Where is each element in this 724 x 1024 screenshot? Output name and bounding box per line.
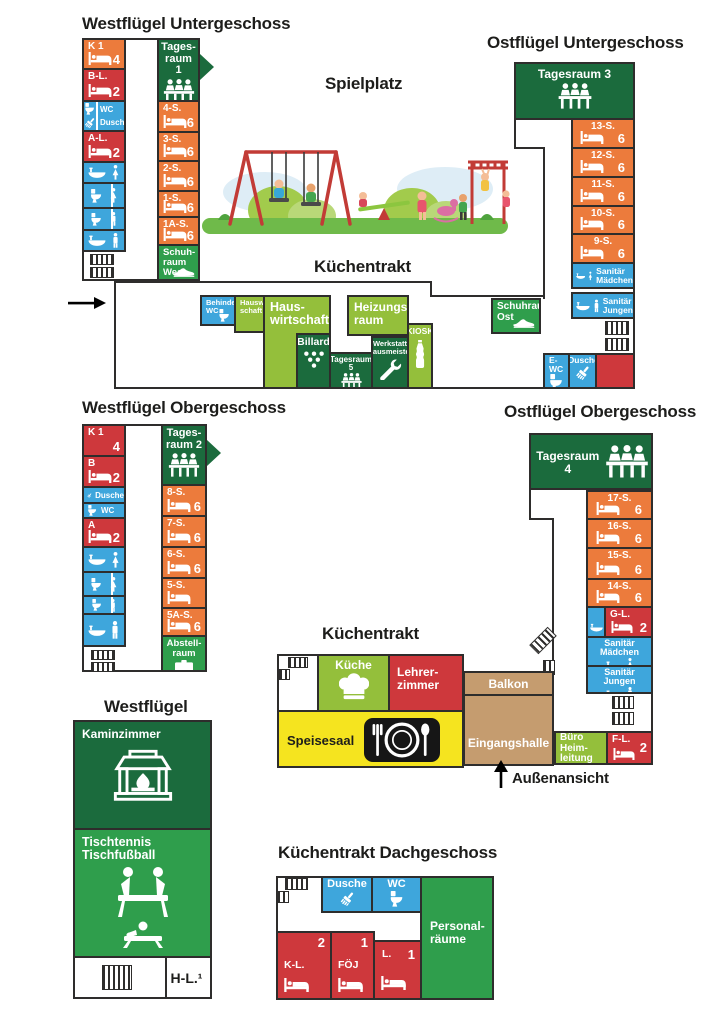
room-label: 8-S. [163,486,205,499]
room-tagesraum-5: Tagesraum 5 [329,352,373,389]
room-label: Tages- raum 1 [159,40,198,77]
room-foej: 1 FÖJ [330,931,375,1000]
bed-count: 6 [194,499,201,514]
bed-icon [167,499,191,512]
washroom-women-og [82,546,126,573]
room-wc-dach: WC [371,876,422,913]
group-table-icon [168,453,200,477]
room-label: 4-S. [159,102,198,115]
room-al: A-L. 2 [82,130,126,163]
washbasin-icon [88,235,106,246]
stairs-icon [279,669,290,680]
toilet-icon [91,599,103,611]
room-k1-og: K 1 4 [82,424,126,457]
corridor-wall [514,147,545,149]
room-label: E-WC [545,355,568,374]
room-kaminzimmer: Kaminzimmer [73,720,212,830]
bed-icon [337,978,364,992]
washroom-men-og [82,613,126,647]
bed-icon [594,590,622,603]
room-speisesaal: Speisesaal [277,710,464,768]
bed-count: 6 [618,189,625,204]
room-sanitaer-jungen-og: Sanitär Jungen [586,665,653,694]
room-label: Tagesraum 4 [531,448,605,475]
room-gl: G-L. 2 [604,606,653,638]
toilet-icon [90,213,103,226]
bed-icon [579,131,605,144]
stairs-icon [288,657,308,668]
room-label: FÖJ [338,959,358,971]
group-table-icon [557,83,593,109]
wc-women-og [82,571,126,597]
room-tagesraum-4: Tagesraum 4 [529,433,653,490]
room-1s: 1-S. 6 [157,190,200,218]
room-14s: 14-S. 6 [586,578,653,608]
man-icon [626,687,634,694]
room-eingangshalle: Eingangshalle [463,694,554,766]
washbasin-icon [576,301,590,311]
bed-count: 6 [618,160,625,175]
room-17s: 17-S. 6 [586,490,653,520]
bed-count: 6 [618,131,625,146]
bed-icon [88,145,112,158]
shower-brush-icon [575,365,591,381]
divider [111,573,113,595]
divider [111,209,113,229]
corridor-wall [114,281,432,283]
room-label: 2-S. [159,162,198,175]
room-label: Speisesaal [287,733,354,748]
bed-count: 1 [361,935,368,950]
room-label: Tagesraum 3 [536,64,613,81]
bed-icon [88,530,112,543]
bed-icon [88,470,112,483]
room-sanitaer-maedchen-og: Sanitär Mädchen [586,636,653,667]
bed-count: 4 [113,52,120,67]
bed-count: 2 [113,530,120,545]
room-label: 5-S. [163,579,205,592]
room-label: Balkon [488,677,528,691]
bed-icon [594,562,622,575]
bed-icon [163,115,187,128]
bed-count: 6 [187,200,194,215]
room-kl: 2 K-L. [276,931,332,1000]
room-tischtennis: Tischtennis Tischfußball [73,828,212,958]
washbasin-icon [605,690,622,694]
bed-count: 6 [187,144,194,159]
room-label: Abstell- raum [165,637,204,659]
room-schuhraum-west: Schuh- raum West [157,244,200,281]
room-a: A 2 [82,517,126,548]
corridor-wall [529,488,531,520]
bed-count: 1 [408,947,415,962]
chef-hat-icon [339,673,369,700]
room-wc-dusche-ug: WC Dusche [82,100,126,132]
stair-cell [75,958,167,997]
bed-icon [579,189,605,202]
bed-count: 6 [187,228,194,243]
bottle-icon [414,339,426,369]
title-spielplatz: Spielplatz [325,74,402,94]
room-abstellraum: Abstell- raum [161,635,207,672]
wrench-icon [378,358,402,380]
room-label: Büro Heim- leitung [556,731,606,765]
room-werkstatt: Werkstatt Hausmeister [371,336,409,389]
toilet-icon [87,505,98,516]
room-label: K-L. [284,959,304,971]
room-label: Kaminzimmer [75,722,210,741]
room-label: Haus- wirtschaft [265,297,329,327]
room-label: A-L. [84,132,124,145]
room-personalraeume: Personal- räume [420,876,494,1000]
toilet-icon [90,578,103,591]
room-bl: B-L. 2 [82,68,126,102]
icon-row [605,687,634,694]
icon-column [84,102,98,130]
room-12s: 12-S. 6 [571,147,635,178]
room-behinderten-wc: Behinderten WC [200,295,236,326]
wc-men-ug [82,207,126,231]
bed-count: 6 [635,562,642,577]
corridor-wall [543,147,545,299]
room-label: K 1 [84,426,124,439]
title-ost-og: Ostflügel Obergeschoss [504,402,696,422]
wc-men-og [82,595,126,615]
bed-count: 2 [640,740,647,755]
room-label: Heizungs- raum [349,297,407,326]
tagesraum1-arrow [200,54,214,80]
shoe-icon [512,317,536,328]
bed-count: 6 [187,174,194,189]
shower-brush-icon [84,117,96,129]
stairs-icon [91,650,115,660]
room-label: Werkstatt Hausmeister [371,338,409,356]
room-5s: 5-S. [161,577,207,609]
room-schuhraum-ost: Schuhraum Ost [491,298,541,334]
bed-count: 6 [618,217,625,232]
entrance-arrow-icon [68,296,106,310]
bed-count: 4 [113,439,120,454]
washroom-men-ug [82,229,126,252]
room-label: Personal- räume [422,878,492,945]
woman-icon [588,269,593,283]
title-westfluegel: Westflügel [104,697,188,717]
wc-women-ug [82,182,126,209]
room-sanitaer-maedchen-ug: Sanitär Mädchen [571,262,635,289]
divider [111,184,113,207]
bed-icon [167,619,191,632]
room-label: Sanitär Jungen [588,667,651,687]
floor-plan: Westflügel Untergeschoss Ostflügel Unter… [0,0,724,1024]
room-9s: 9-S. 6 [571,233,635,264]
room-label: 15-S. [588,549,651,562]
stairs-icon [90,267,114,278]
dining-icon [364,718,440,762]
room-label: H-L.¹ [171,970,203,986]
room-label: Dusche [325,878,369,891]
stairs-icon [612,696,634,709]
room-dusche-ug: Dusche [568,353,597,389]
room-7s: 7-S. 6 [161,515,207,548]
bed-icon [163,174,187,187]
toilet-icon [389,891,405,907]
room-tagesraum-3: Tagesraum 3 [514,62,635,120]
room-label: WC [101,506,114,515]
room-11s: 11-S. 6 [571,176,635,207]
title-ost-ug: Ostflügel Untergeschoss [487,33,684,53]
room-e-wc: E-WC [543,353,570,389]
room-hl-row: H-L.¹ [73,956,212,999]
washroom-women-ug [82,161,126,184]
shower-brush-icon [339,891,356,907]
billiard-icon [303,351,325,370]
up-arrow-icon [494,760,508,788]
bed-count: 2 [113,145,120,160]
man-icon [593,299,600,313]
room-tagesraum-1: Tages- raum 1 [157,38,200,102]
bed-count: 6 [635,590,642,605]
games-icon [106,864,180,948]
room-16s: 16-S. 6 [586,518,653,549]
room-label: Tischtennis Tischfußball [75,830,210,862]
dusche-label: Dusche [100,118,126,127]
corridor-wall [430,295,545,297]
bed-count: 6 [187,115,194,130]
bed-icon [594,531,622,544]
stairs-icon [90,254,114,265]
label-aussenansicht: Außenansicht [512,770,609,787]
group-table-icon [605,445,649,478]
bed-count: 6 [635,502,642,517]
bed-icon [167,530,191,543]
room-label: L. [382,948,391,960]
stairs-icon [612,712,634,725]
bed-icon [610,621,634,633]
room-label: G-L. [606,608,651,621]
room-fl: F-L. 2 [606,731,653,765]
room-balkon: Balkon [463,671,554,696]
washbasin-icon [576,271,585,281]
man-icon [110,621,120,639]
bed-icon [88,52,112,65]
room-15s: 15-S. 6 [586,547,653,580]
stairs-icon [91,662,115,672]
fireplace-icon [111,747,175,805]
room-label: KIOSK [407,325,433,336]
room-hl: H-L.¹ [163,958,210,997]
room-6s: 6-S. 6 [161,546,207,579]
bed-count: 6 [194,530,201,545]
room-2s: 2-S. 6 [157,160,200,192]
bed-icon [283,978,310,992]
room-13s: 13-S. 6 [571,118,635,149]
bed-count: 6 [618,246,625,261]
man-icon [111,233,120,248]
corridor-wall [529,518,554,520]
woman-icon [111,552,120,568]
bed-count: 2 [640,620,647,635]
toilet-icon [84,103,96,115]
bed-count: 6 [635,531,642,546]
washroom-gl [586,606,606,638]
room-label: Dusche [95,491,124,500]
room-heizungsraum: Heizungs- raum [347,295,409,336]
room-3s: 3-S. 6 [157,131,200,162]
room-label: Sanitär Mädchen [588,638,651,658]
title-kuechentrakt-ug: Küchentrakt [314,257,411,277]
room-10s: 10-S. 6 [571,205,635,235]
bed-icon [163,144,187,157]
room-label: 6-S. [163,548,205,561]
room-kiosk: KIOSK [407,323,433,389]
room-label: K 1 [84,40,124,53]
room-dusche-dach: Dusche [321,876,373,913]
bed-count: 6 [194,561,201,576]
bed-icon [579,160,605,173]
stairs-icon [102,965,132,990]
room-label: Tages- raum 2 [164,426,204,451]
bed-icon [167,561,191,574]
title-kuechentrakt-dach: Küchentrakt Dachgeschoss [278,843,497,863]
room-unlabeled-red [595,353,635,389]
room-lehrerzimmer: Lehrer- zimmer [388,654,464,712]
room-kueche: Küche [317,654,390,712]
stairs-icon [277,891,289,903]
bed-icon [594,502,622,515]
room-label: WC [385,878,407,891]
room-hauswirtschaft-klein: Hauswirt- schaft [234,295,265,333]
group-table-icon [340,373,363,389]
room-5as: 5A-S. 6 [161,607,207,637]
wc-label: WC [100,105,126,114]
room-sanitaer-jungen-ug: Sanitär Jungen [571,292,635,319]
room-8s: 8-S. 6 [161,484,207,517]
title-west-ug: Westflügel Untergeschoss [82,14,290,34]
group-table-icon [163,79,195,102]
room-l: L. 1 [373,940,422,1000]
bed-icon [380,976,407,990]
room-tagesraum-2: Tages- raum 2 [161,424,207,486]
toilet-icon [90,189,103,203]
room-label: Sanitär Jungen [603,297,633,315]
stairs-icon [605,321,629,335]
title-kuechentrakt: Küchentrakt [322,624,419,644]
washbasin-icon [88,625,106,636]
title-west-og: Westflügel Obergeschoss [82,398,286,418]
room-label: Eingangshalle [468,736,549,750]
woman-icon [111,165,120,180]
label-column: WC Dusche [98,102,126,130]
bed-icon [163,200,187,213]
shower-brush-icon [87,490,92,501]
bed-count: 6 [194,619,201,634]
room-label: Dusche [568,355,597,365]
toilet-icon [549,374,564,389]
washbasin-icon [88,167,106,178]
room-4s: 4-S. 6 [157,100,200,133]
corridor-wall [114,281,116,389]
washbasin-icon [590,623,603,632]
washbasin-icon [88,554,106,565]
room-b: B 2 [82,455,126,488]
room-label: B-L. [84,70,124,83]
stairs-icon [605,338,629,351]
room-label: Küche [333,656,374,672]
bed-icon [579,246,605,259]
bed-count: 2 [113,470,120,485]
bed-icon [579,217,605,230]
bed-icon [163,228,187,241]
toilet-icon [218,309,231,322]
bed-count: 2 [318,935,325,950]
room-label: B [84,457,124,470]
divider [111,597,113,613]
suitcase-icon [175,660,193,672]
room-label: Billard [296,335,331,348]
room-label: Lehrer- zimmer [390,656,462,691]
room-buero-heimleitung: Büro Heim- leitung [554,731,608,765]
room-1as: 1A-S. 6 [157,216,200,246]
bed-icon [88,84,112,97]
room-label: Hauswirt- schaft [236,297,263,315]
stairs-icon [285,878,308,890]
bed-icon [167,591,191,604]
corridor-wall [514,118,516,149]
spielplatz-illustration [200,112,510,238]
room-label: Tagesraum 5 [329,354,373,373]
bed-count: 2 [113,84,120,99]
room-k1-ug: K 1 4 [82,38,126,70]
shoe-icon [173,266,195,277]
tagesraum2-arrow [207,440,221,466]
room-billard: Billard [296,333,331,389]
room-label: 7-S. [163,517,205,530]
bed-icon [612,748,636,760]
room-label: Sanitär Mädchen [596,267,633,285]
